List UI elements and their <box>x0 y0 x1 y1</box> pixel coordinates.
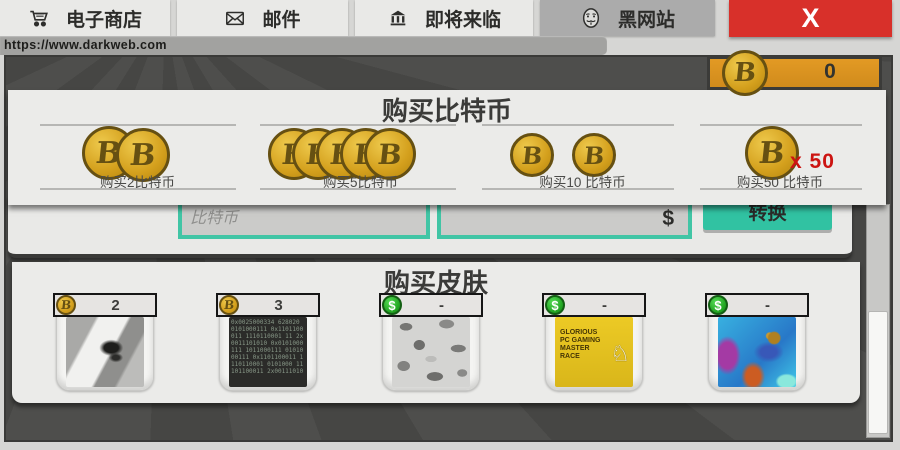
knight-figure-icon: ♘ <box>610 341 630 367</box>
divider <box>260 124 456 126</box>
bitcoin-balance-value: 0 <box>800 60 860 84</box>
dollar-coin-icon: $ <box>545 295 565 315</box>
tab-label: 邮件 <box>262 5 300 32</box>
dollar-amount-field[interactable]: $ <box>437 199 692 239</box>
skin-image-pc-master-race: GLORIOUS PC GAMING MASTER RACE ♘ <box>555 317 633 387</box>
skin-price: 3 <box>239 297 318 314</box>
mail-icon <box>224 7 246 29</box>
skin-card-pc-master-race[interactable]: GLORIOUS PC GAMING MASTER RACE ♘ $ - <box>542 293 646 393</box>
bitcoin-amount-input[interactable] <box>178 199 430 239</box>
tab-label: 黑网站 <box>618 5 675 32</box>
dollar-coin-icon: $ <box>382 295 402 315</box>
price-tag: B 3 <box>216 293 320 317</box>
divider <box>482 124 674 126</box>
dollar-coin-icon: $ <box>708 295 728 315</box>
skin-image-gray-camo <box>392 317 470 387</box>
multiplier-badge: x 50 <box>790 150 835 174</box>
divider <box>260 188 456 190</box>
bitcoin-coin-icon: B <box>56 295 76 315</box>
divider <box>40 124 236 126</box>
price-tag: $ - <box>705 293 809 317</box>
skin-card-gray-camo[interactable]: $ - <box>379 293 483 393</box>
cart-icon <box>28 7 50 29</box>
skin-image-gray-stripe-wolf <box>66 317 144 387</box>
price-tag: B 2 <box>53 293 157 317</box>
price-tag: $ - <box>542 293 646 317</box>
bitcoin-coin-icon: B <box>219 295 239 315</box>
divider <box>700 124 862 126</box>
tab-electronic-store[interactable]: 电子商店 <box>0 0 170 36</box>
skin-card-binary-code[interactable]: 0x0025000334 628020 0101000111 0x1101100… <box>216 293 320 393</box>
close-button[interactable]: X <box>729 0 892 37</box>
skin-art-text: GLORIOUS PC GAMING MASTER RACE <box>560 329 608 361</box>
tab-label: 电子商店 <box>66 5 142 32</box>
url-bar[interactable]: https://www.darkweb.com <box>0 36 607 55</box>
tab-dark-website[interactable]: 黑网站 <box>540 0 715 36</box>
divider <box>482 188 674 190</box>
divider <box>40 188 236 190</box>
dollar-sign: $ <box>662 207 674 231</box>
tab-mail[interactable]: 邮件 <box>177 0 348 36</box>
tab-coming-soon[interactable]: 即将来临 <box>355 0 533 36</box>
tab-label: 即将来临 <box>425 5 501 32</box>
skin-card-gray-stripe-wolf[interactable]: B 2 <box>53 293 157 393</box>
close-icon: X <box>801 3 819 34</box>
skin-price: - <box>402 297 481 314</box>
skin-price: 2 <box>76 297 155 314</box>
scrollbar-thumb[interactable] <box>868 311 888 434</box>
skin-card-hyper-beast[interactable]: $ - <box>705 293 809 393</box>
bitcoin-coin-icon: B <box>722 50 768 96</box>
skin-image-binary-code: 0x0025000334 628020 0101000111 0x1101100… <box>229 317 307 387</box>
skin-price: - <box>728 297 807 314</box>
bank-icon <box>387 7 409 29</box>
skin-image-hyper-beast <box>718 317 796 387</box>
mask-icon <box>580 7 602 29</box>
divider <box>700 188 862 190</box>
skin-price: - <box>565 297 644 314</box>
price-tag: $ - <box>379 293 483 317</box>
